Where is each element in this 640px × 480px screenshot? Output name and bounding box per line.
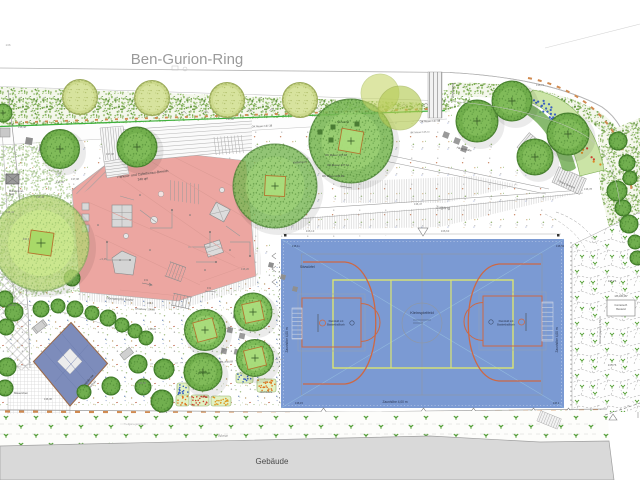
svg-text:OK Mauer 136,99: OK Mauer 136,99 <box>322 174 345 178</box>
svg-text:136,13: 136,13 <box>306 229 315 233</box>
svg-text:136,26: 136,26 <box>8 303 16 307</box>
svg-text:Basketballkorb: Basketballkorb <box>497 323 515 327</box>
svg-text:136,63: 136,63 <box>441 229 450 233</box>
svg-text:Zaunhöhe 4,00 m: Zaunhöhe 4,00 m <box>383 400 408 404</box>
svg-text:136,26: 136,26 <box>241 267 249 271</box>
svg-text:Zugang: Zugang <box>436 205 451 211</box>
svg-text:136,1: 136,1 <box>553 401 560 405</box>
svg-text:136,45: 136,45 <box>56 180 64 184</box>
svg-text:136,38: 136,38 <box>36 195 44 199</box>
svg-text:136,41: 136,41 <box>6 210 14 214</box>
svg-text:Bestand: Bestand <box>616 307 626 311</box>
svg-text:136,4: 136,4 <box>147 301 154 305</box>
svg-text:OK Mauer 137,11: OK Mauer 137,11 <box>327 163 349 167</box>
svg-text:136: 136 <box>5 43 10 47</box>
svg-text:136,186,487: 136,186,487 <box>614 295 628 298</box>
svg-text:136,78: 136,78 <box>584 187 592 191</box>
svg-text:Basketballkorb: Basketballkorb <box>327 323 345 327</box>
svg-text:Gebäude: Gebäude <box>256 457 289 466</box>
svg-text:136,63: 136,63 <box>556 244 564 248</box>
svg-text:135,76: 135,76 <box>608 363 617 367</box>
svg-text:136,26: 136,26 <box>148 327 156 331</box>
svg-text:Kleinfeld mit: Kleinfeld mit <box>329 319 344 323</box>
svg-text:Bohlensteg: Bohlensteg <box>451 83 455 97</box>
svg-text:Kleinfeld mit: Kleinfeld mit <box>499 319 514 323</box>
svg-text:136,48: 136,48 <box>18 125 26 129</box>
svg-text:1%: 1% <box>207 286 212 290</box>
svg-text:137,08: 137,08 <box>106 152 114 156</box>
svg-text:136,47: 136,47 <box>414 202 422 206</box>
svg-text:Kleinspielfeld: Kleinspielfeld <box>410 310 434 315</box>
svg-text:136,3: 136,3 <box>23 237 30 241</box>
svg-text:137,38: 137,38 <box>226 117 234 121</box>
svg-text:136,36: 136,36 <box>44 397 52 401</box>
svg-text:1%: 1% <box>144 278 149 282</box>
svg-text:Containerfl.: Containerfl. <box>614 303 628 307</box>
svg-text:OK Mauer 137,48: OK Mauer 137,48 <box>325 153 348 157</box>
svg-text:136,15: 136,15 <box>295 401 303 405</box>
svg-text:136,1x: 136,1x <box>292 244 300 248</box>
svg-text:136,74: 136,74 <box>536 83 544 87</box>
svg-text:+ 0,45: + 0,45 <box>99 257 107 261</box>
svg-text:Mäuerchen: Mäuerchen <box>14 391 28 395</box>
svg-text:137,08: 137,08 <box>71 177 79 181</box>
svg-text:+ Aufenthalt: + Aufenthalt <box>196 371 211 375</box>
svg-text:Rettungsweg 3,50 m: Rettungsweg 3,50 m <box>598 316 602 344</box>
svg-text:Tiefgaragendach: Tiefgaragendach <box>124 422 147 426</box>
svg-text:136,36: 136,36 <box>138 381 146 385</box>
svg-text:135,76: 135,76 <box>608 279 617 283</box>
svg-text:Sitzwürfel: Sitzwürfel <box>300 265 315 269</box>
svg-text:Hochbeete: Hochbeete <box>260 390 273 394</box>
svg-text:Sitzwürfel: Sitzwürfel <box>337 120 350 124</box>
svg-text:Zaunhöhe 4,00 m: Zaunhöhe 4,00 m <box>285 327 289 352</box>
svg-text:platz: platz <box>9 192 15 196</box>
svg-text:Ben-Gurion-Ring: Ben-Gurion-Ring <box>131 51 244 68</box>
svg-text:Zaunhöhe 4,00 m: Zaunhöhe 4,00 m <box>555 327 559 352</box>
svg-text:Wiese: Wiese <box>218 434 228 438</box>
